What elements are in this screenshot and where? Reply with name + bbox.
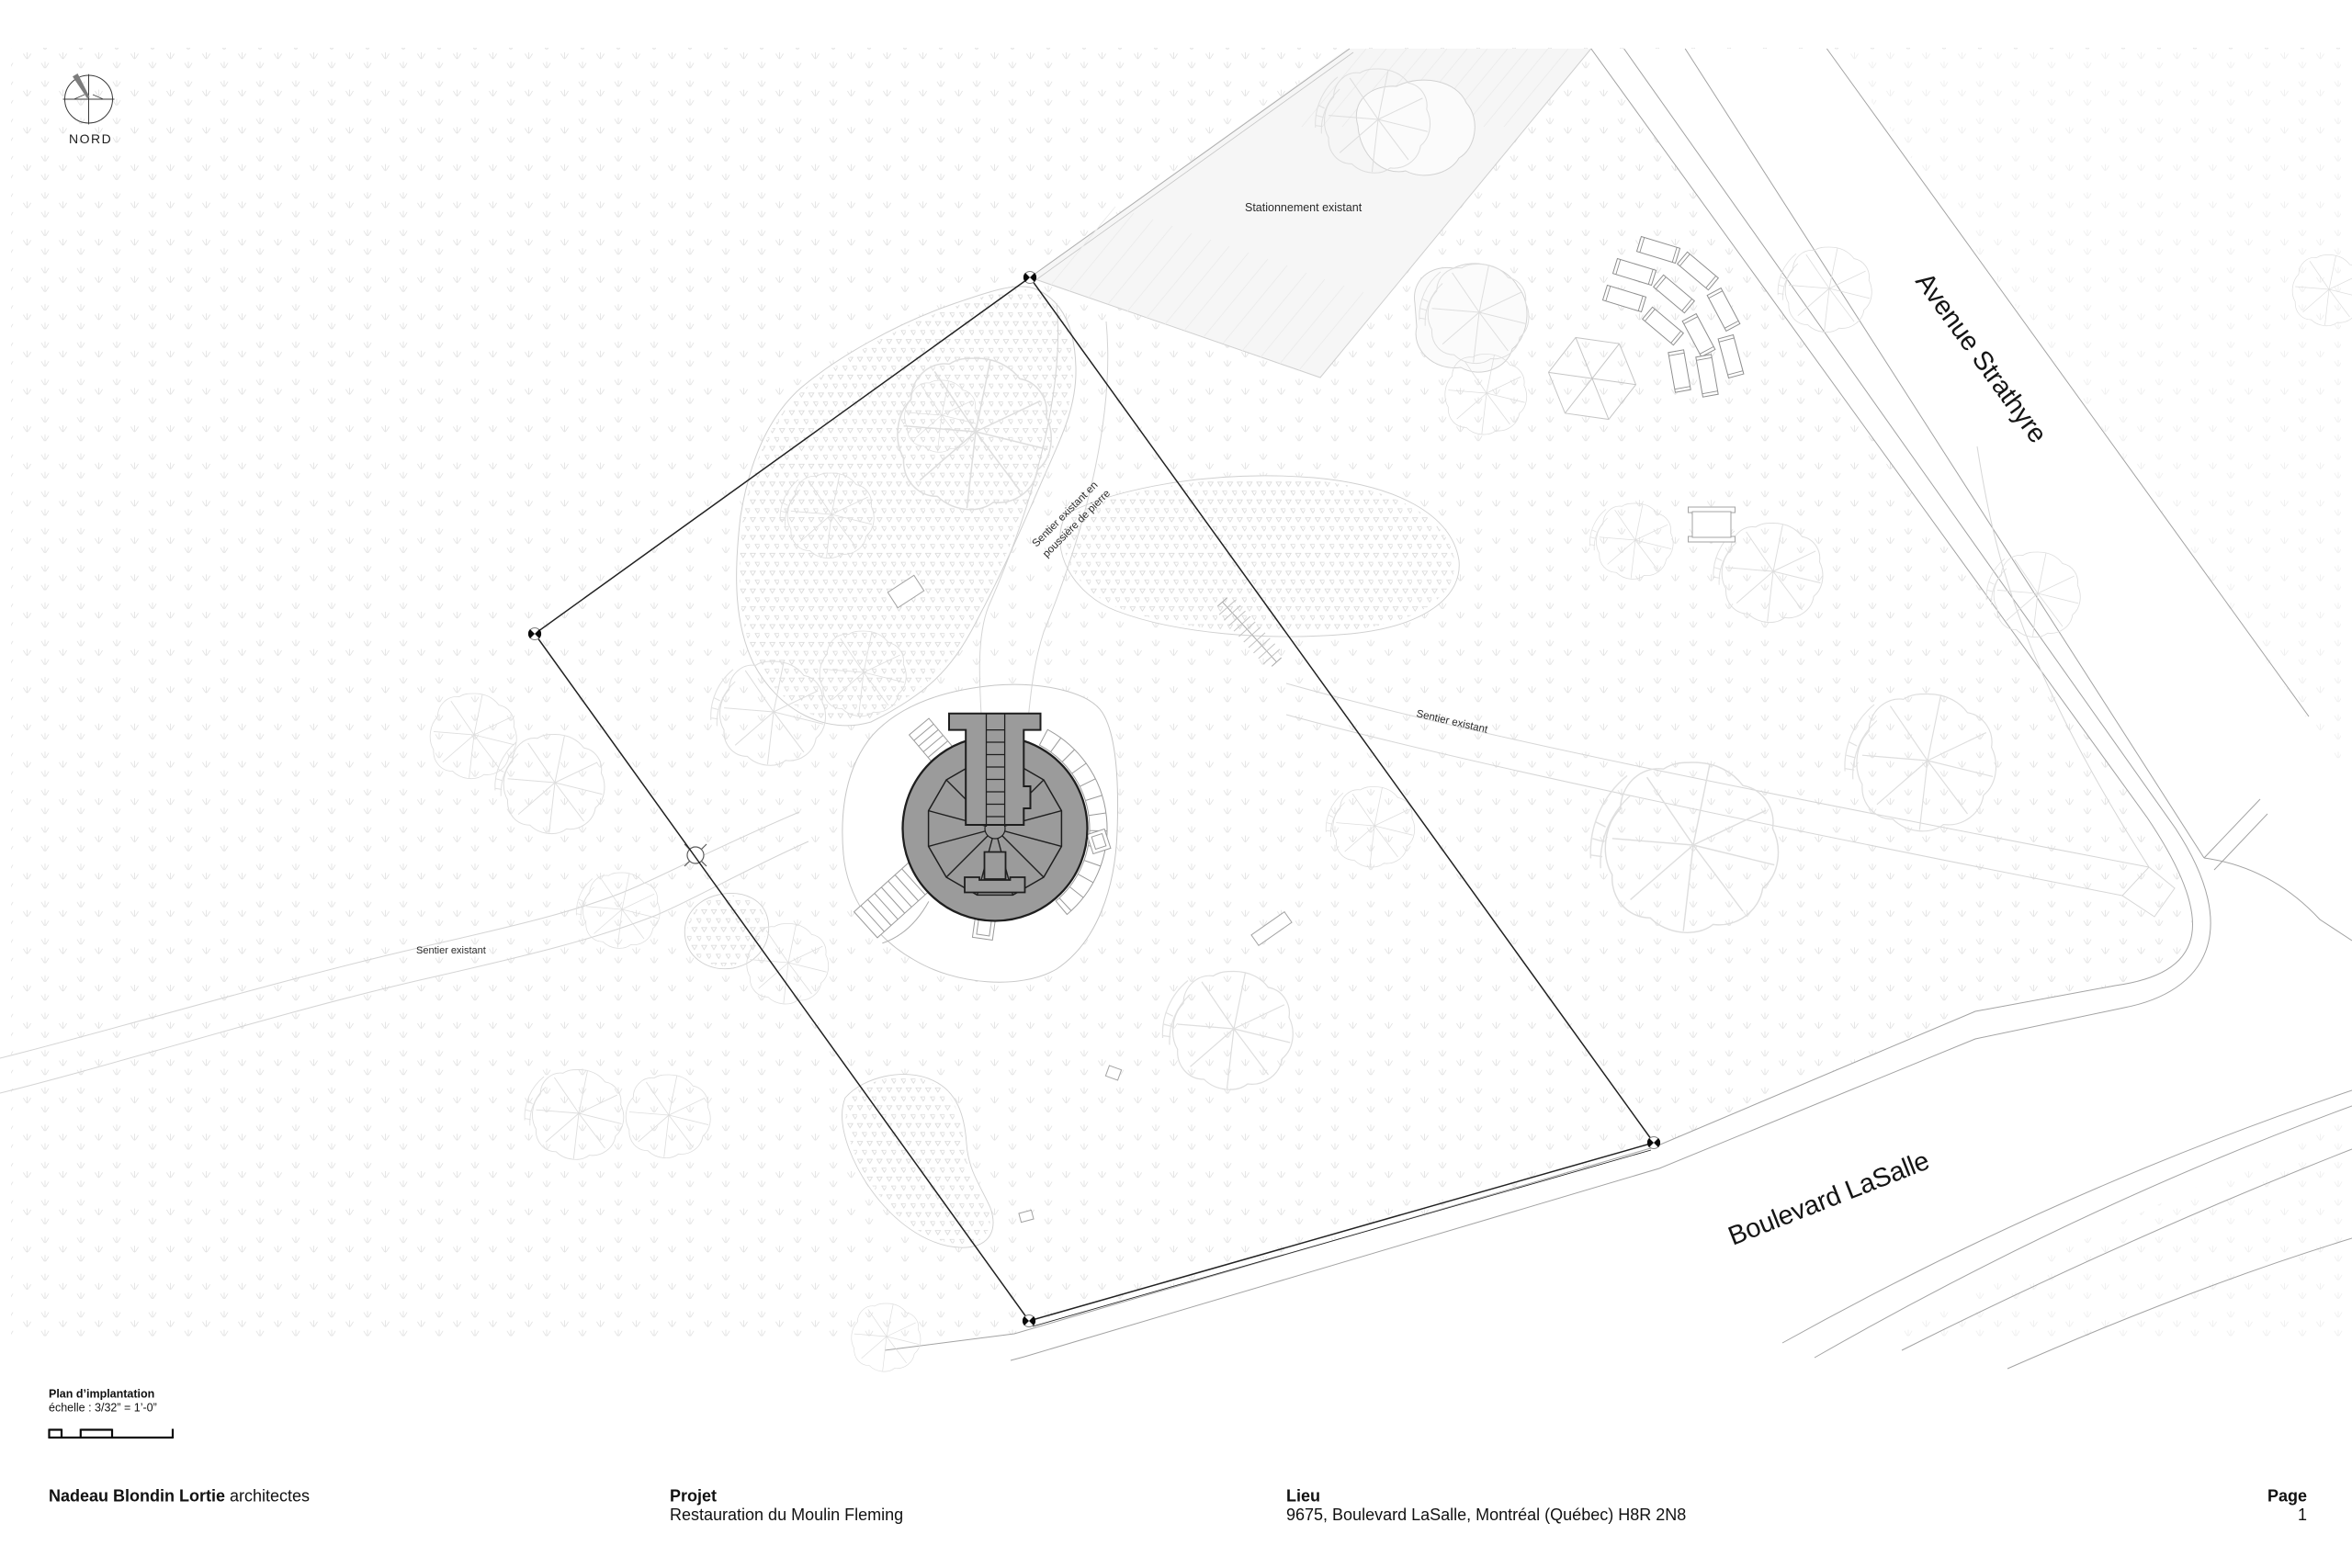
svg-text:Lieu: Lieu: [1286, 1487, 1320, 1506]
svg-text:NORD: NORD: [69, 131, 112, 146]
svg-text:Nadeau Blondin Lortie architec: Nadeau Blondin Lortie architectes: [49, 1487, 310, 1506]
svg-text:Restauration du Moulin Fleming: Restauration du Moulin Fleming: [670, 1506, 903, 1524]
svg-text:Sentier existant: Sentier existant: [416, 945, 486, 956]
svg-text:Stationnement existant: Stationnement existant: [1245, 201, 1363, 214]
svg-text:Page: Page: [2267, 1487, 2307, 1506]
svg-text:Projet: Projet: [670, 1487, 717, 1506]
svg-text:9675, Boulevard LaSalle, Montr: 9675, Boulevard LaSalle, Montréal (Québe…: [1286, 1506, 1686, 1524]
svg-text:Plan d’implantation: Plan d’implantation: [49, 1388, 154, 1401]
svg-text:échelle : 3/32” = 1’-0”: échelle : 3/32” = 1’-0”: [49, 1402, 157, 1415]
svg-text:1: 1: [2298, 1506, 2307, 1524]
